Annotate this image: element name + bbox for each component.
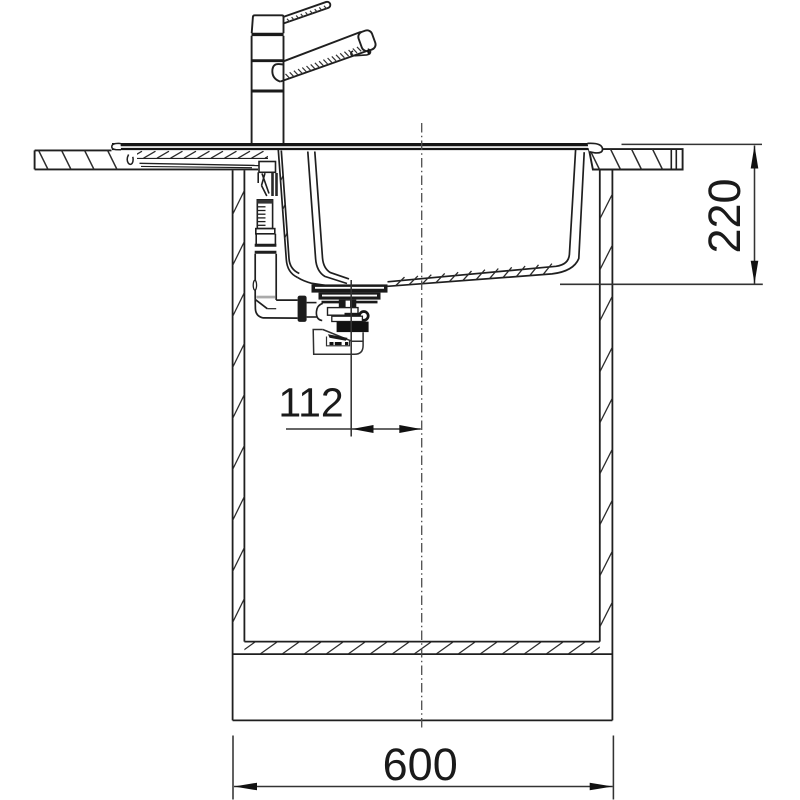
svg-text:220: 220 bbox=[699, 178, 750, 253]
svg-text:112: 112 bbox=[278, 379, 343, 425]
svg-text:600: 600 bbox=[383, 739, 458, 790]
